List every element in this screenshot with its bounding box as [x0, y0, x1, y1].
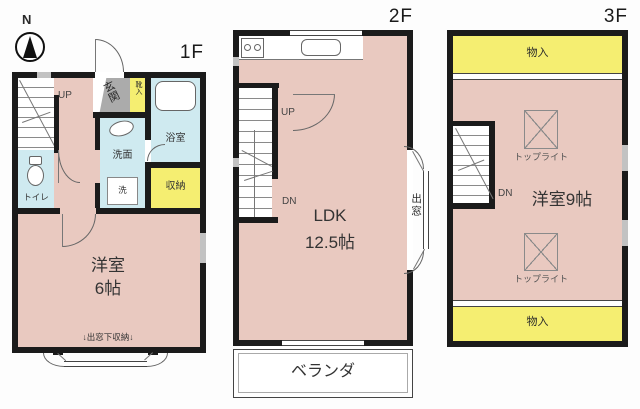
floor1-bedroom-size: 6帖	[58, 279, 158, 299]
floor3-closet-bottom-label: 物入	[453, 316, 622, 329]
floor1-washer-label: 洗	[107, 186, 138, 196]
kitchen-sink-icon	[301, 39, 341, 56]
floor1-bedroom-name: 洋室	[58, 256, 158, 276]
floor1-closet-label: 収納	[151, 181, 200, 193]
compass-needle-icon	[23, 36, 37, 58]
floor3-label: 3F	[583, 6, 628, 28]
floor2-ldk-name: LDK	[280, 206, 380, 226]
floor2-ldk-size: 12.5帖	[280, 233, 380, 253]
floor3-skylight-bottom-label: トップライト	[496, 274, 586, 284]
floor3-closet-bottom-partition	[453, 300, 622, 307]
floor3-skylight-top-label: トップライト	[496, 152, 586, 162]
floor2-stairs-wall-right	[272, 83, 278, 179]
floor1-toilet-label: トイレ	[16, 193, 56, 203]
floor2-bay-casement-bottom	[404, 251, 424, 274]
floor1-up-label: UP	[58, 90, 72, 102]
toilet-tank-icon	[29, 156, 42, 165]
floor3-closet-top-partition	[453, 73, 622, 80]
skylight-bottom-icon	[524, 233, 558, 271]
floor1-bay-note: ↓出窓下収納↓	[56, 333, 160, 343]
floor1-bedroom-wall-left	[18, 208, 60, 214]
floor1-shoe-cabinet-label: 靴入	[134, 81, 142, 95]
floor2-left-window-upper	[233, 57, 239, 66]
floor1-bedroom-wall-right	[96, 208, 200, 214]
floor2-bay-label: 出窓	[410, 193, 422, 218]
floor2-bay-glass	[423, 171, 429, 249]
floor3-closet-top-label: 物入	[453, 47, 622, 60]
floor2-label: 2F	[368, 6, 413, 28]
floor1-bay-casement-right	[147, 353, 168, 367]
floor1-entrance-door-arc	[95, 39, 124, 72]
floor2-bottom-window	[282, 340, 364, 346]
stove-burner-icon	[254, 44, 261, 51]
floor1-label: 1F	[158, 42, 204, 64]
floor1-hall-wall-lower	[95, 183, 100, 208]
compass-north-label: N	[22, 13, 31, 28]
floor2-stairs-door-leaf	[293, 94, 335, 95]
floor1-stairs-wall	[54, 95, 59, 153]
floor2-bay-casement-top	[404, 146, 424, 169]
floor2-stairs-wall-bottom	[239, 217, 278, 223]
floor1-hall-wall-upper	[95, 118, 100, 150]
floor1-bathroom-label: 浴室	[151, 133, 200, 145]
floor2-left-window-lower	[233, 158, 239, 167]
toilet-bowl-icon	[27, 165, 44, 186]
floor1-washroom-label: 洗面	[100, 150, 145, 162]
bathtub-icon	[155, 81, 196, 111]
floor1-entrance-door-leaf	[95, 39, 96, 72]
floor1-bay-casement-left	[43, 353, 64, 367]
floor-plan-canvas: N 1F UP トイレ 玄関 靴入 浴室 収納 洗面 洗 洋室	[0, 0, 640, 409]
veranda-label: ベランダ	[238, 363, 408, 381]
floor1-bedroom-door-leaf	[62, 214, 63, 247]
stove-burner-icon	[244, 44, 251, 51]
skylight-top-icon	[524, 110, 558, 149]
floor3-stairs-wall-bottom	[453, 203, 495, 209]
floor1-right-wall-window	[200, 233, 206, 263]
floor3-right-window-upper	[622, 145, 628, 171]
floor1-washroom-door-leaf	[58, 150, 59, 183]
floor2-stairs-center-line	[254, 130, 255, 217]
floor1-bay-window-glass	[64, 361, 147, 367]
floor3-room-label: 洋室9帖	[502, 190, 622, 210]
floor3-right-window-lower	[622, 220, 628, 246]
